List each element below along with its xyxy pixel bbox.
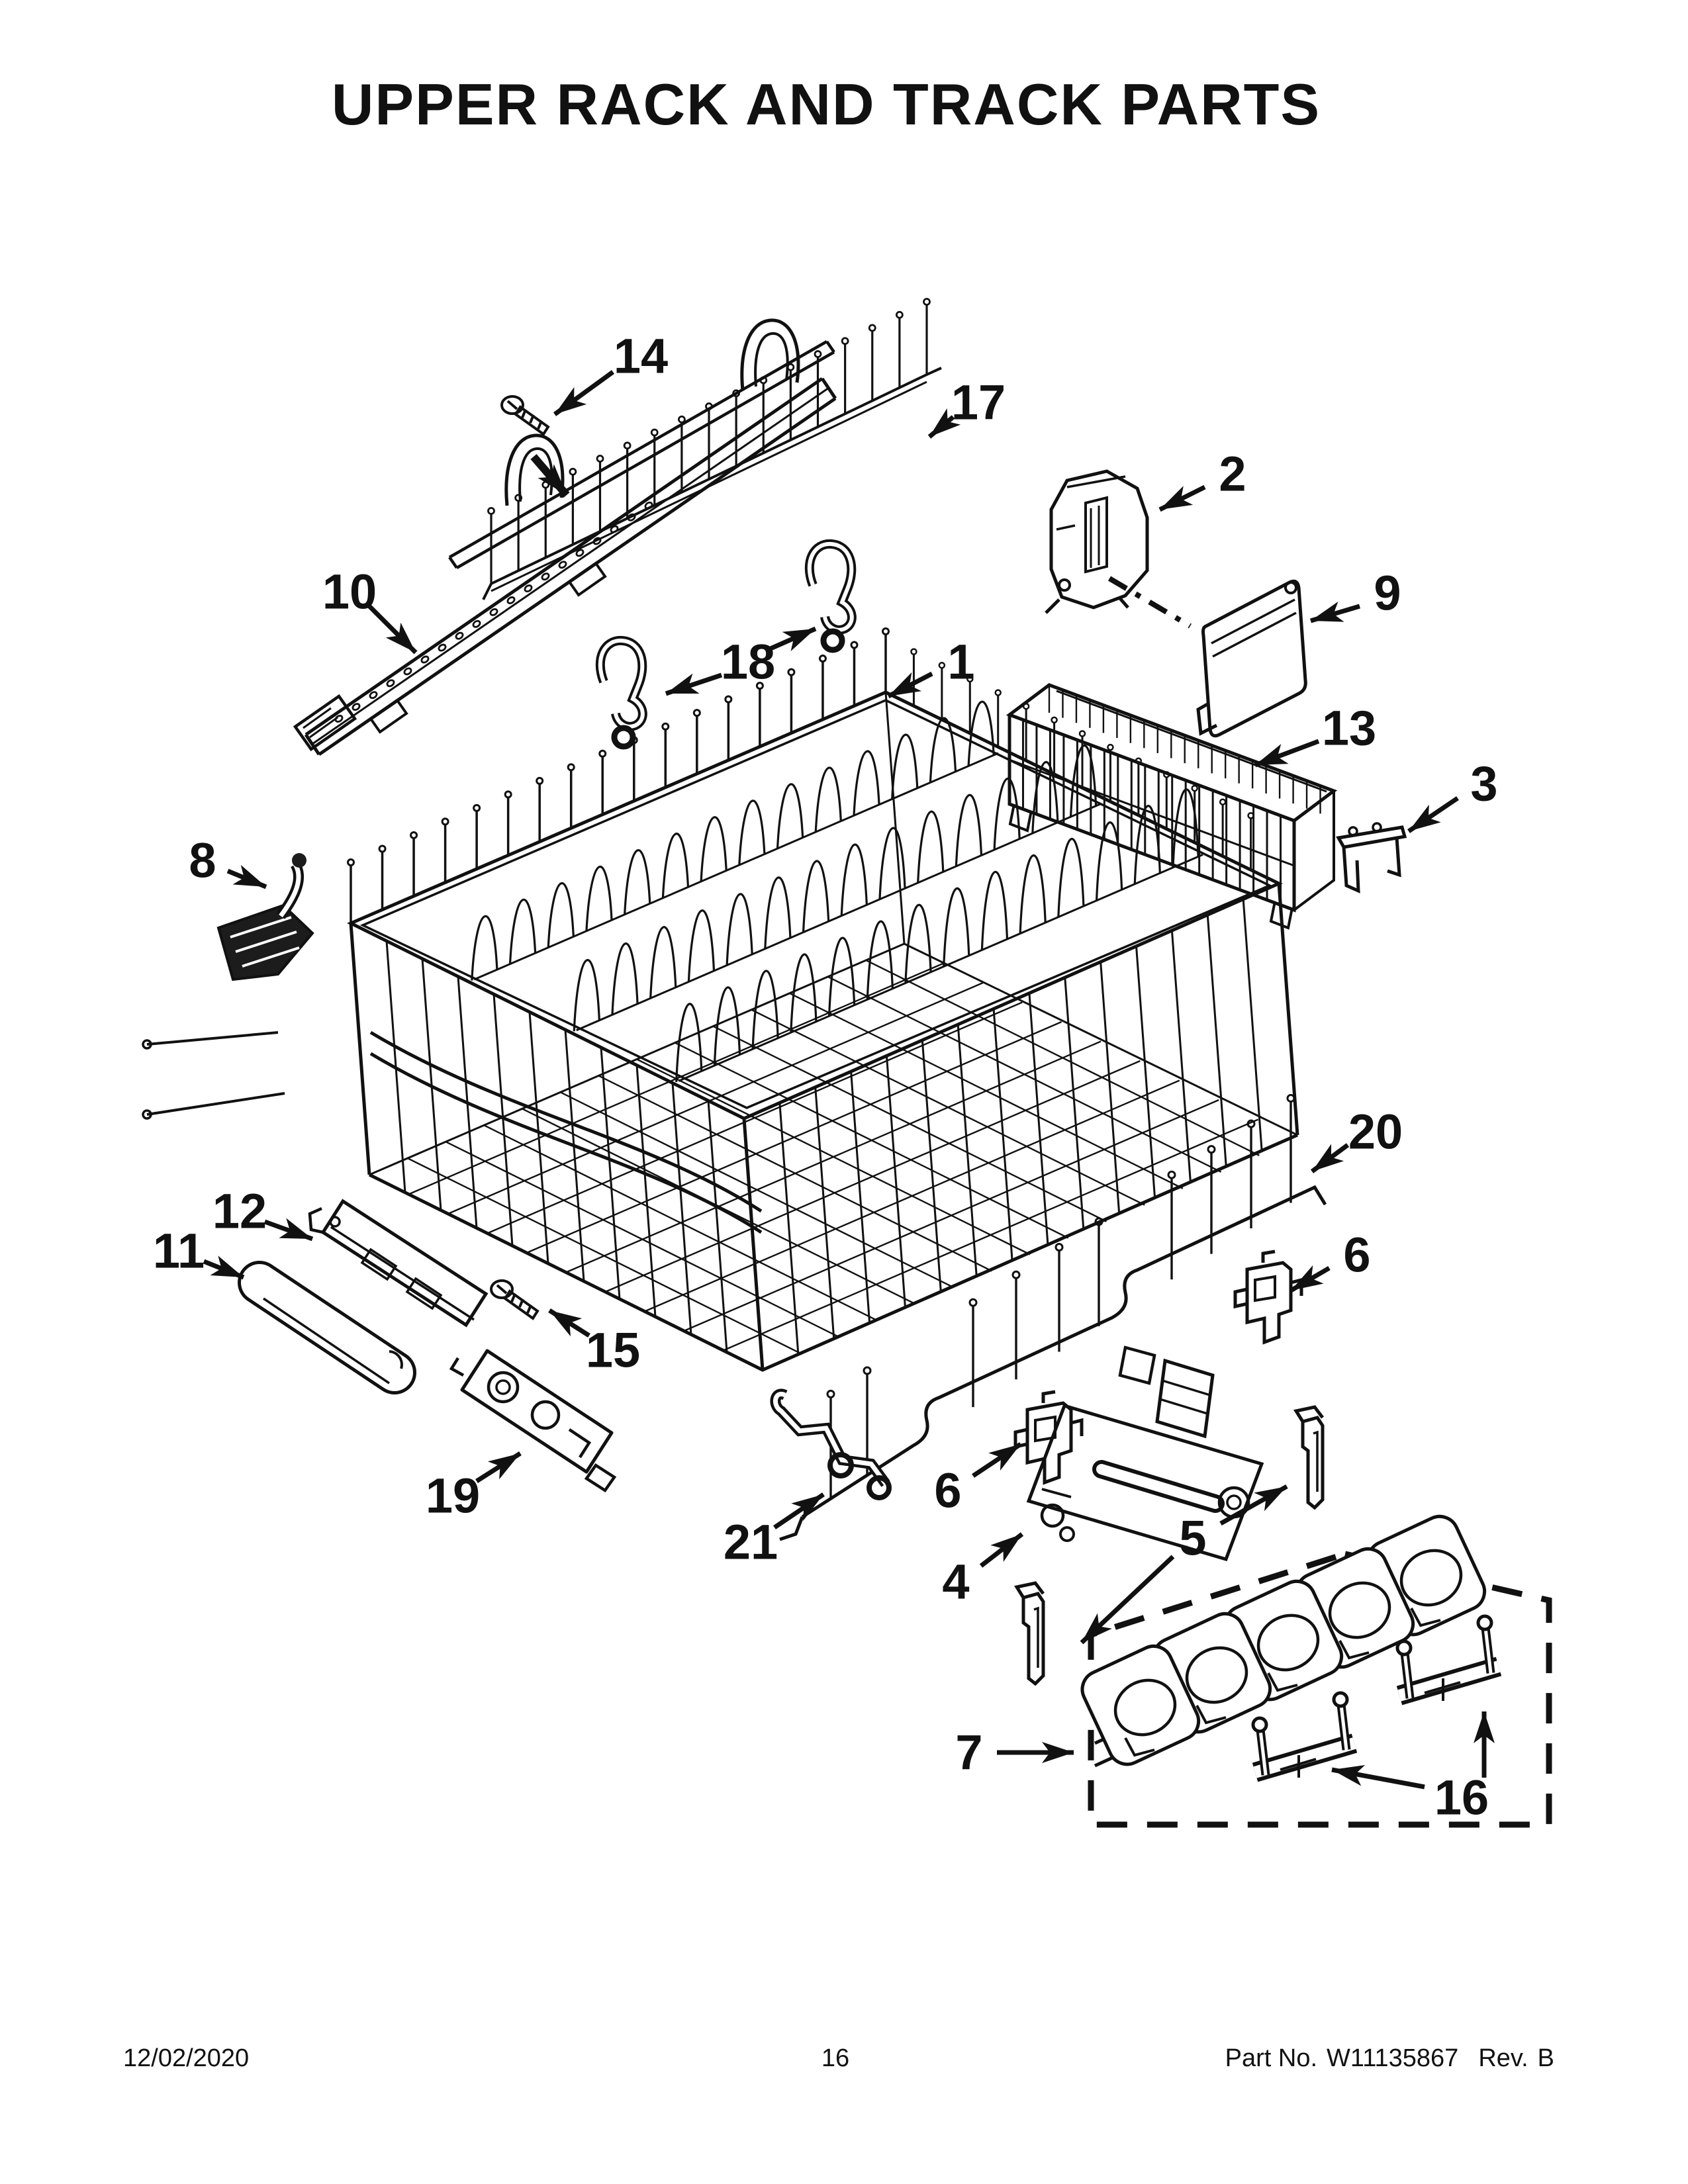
callout-arrow-9 <box>1311 606 1360 621</box>
part-7-cup-shelf <box>1076 1510 1491 1770</box>
callout-label-14: 14 <box>614 329 668 384</box>
part-20-tine-wire <box>780 1095 1325 1539</box>
callout-label-12: 12 <box>212 1184 267 1239</box>
callout-arrow-3 <box>1409 798 1458 831</box>
callout-label-4: 4 <box>942 1555 969 1610</box>
manual-page: UPPER RACK AND TRACK PARTS <box>0 0 1688 2184</box>
callout-arrow-4 <box>981 1534 1022 1566</box>
footer-page-number: 16 <box>821 2044 849 2072</box>
callout-label-18: 18 <box>721 635 775 690</box>
callout-arrow-14 <box>555 372 613 414</box>
callout-arrow-19 <box>477 1453 520 1481</box>
footer-date: 12/02/2020 <box>123 2044 249 2072</box>
footer-revision: B <box>1538 2044 1554 2072</box>
callout-arrow-16 <box>1332 1770 1425 1787</box>
part-3-clip <box>1338 823 1405 891</box>
part-18-hook-clip <box>810 544 852 650</box>
callout-label-10: 10 <box>322 565 377 619</box>
footer-part-label: Part No. <box>1225 2044 1317 2072</box>
part-5-stop-clip <box>1296 1407 1323 1508</box>
callout-label-6: 6 <box>934 1463 961 1518</box>
callout-label-17: 17 <box>951 375 1006 430</box>
callout-arrow-1 <box>888 674 932 696</box>
callout-label-5: 5 <box>1179 1511 1206 1566</box>
part-2-adjuster-bracket <box>1046 471 1147 613</box>
callout-arrow-18 <box>771 629 816 649</box>
part-14-screw <box>502 396 548 434</box>
callout-arrow-13 <box>1255 741 1319 765</box>
part-21-wire-hook <box>775 1394 889 1498</box>
callout-label-7: 7 <box>955 1725 982 1780</box>
callout-label-6: 6 <box>1343 1228 1370 1283</box>
callout-label-8: 8 <box>189 833 216 888</box>
part-18-hook-clip <box>600 641 643 747</box>
callout-label-15: 15 <box>586 1323 640 1378</box>
callout-arrow-8 <box>228 871 266 887</box>
page-title: UPPER RACK AND TRACK PARTS <box>332 71 1321 137</box>
callout-arrow-12 <box>265 1222 312 1239</box>
callout-arrow-17 <box>929 417 953 437</box>
part-16-shelf-clip <box>1253 1693 1354 1778</box>
part-6-clip <box>1235 1251 1301 1342</box>
part-10-track-rail <box>295 320 835 754</box>
callout-arrow-5 <box>1082 1557 1173 1643</box>
callout-label-9: 9 <box>1374 566 1401 621</box>
part-5-stop-clip <box>1017 1583 1043 1684</box>
callout-arrow-5 <box>1221 1486 1287 1524</box>
part-13-small-items-basket <box>1009 685 1334 928</box>
callout-label-2: 2 <box>1219 447 1246 502</box>
callout-arrow-20 <box>1312 1145 1348 1171</box>
callout-label-20: 20 <box>1348 1105 1403 1160</box>
callout-arrow-18 <box>666 675 722 694</box>
callout-label-13: 13 <box>1322 701 1376 756</box>
callout-arrow-11 <box>204 1261 244 1277</box>
callout-arrow-15 <box>549 1310 589 1336</box>
callout-label-3: 3 <box>1470 756 1497 811</box>
callout-label-19: 19 <box>426 1469 480 1524</box>
part-6-clip <box>1015 1392 1082 1482</box>
footer-revision-label: Rev. <box>1478 2044 1528 2072</box>
callout-label-1: 1 <box>947 635 974 690</box>
part-11-handle-cap <box>259 1283 402 1383</box>
part-9-end-cap-cover <box>1198 581 1305 736</box>
part-17-tine-wire <box>483 299 941 600</box>
callout-label-21: 21 <box>724 1515 778 1570</box>
callout-arrow-2 <box>1160 487 1205 510</box>
callout-label-16: 16 <box>1434 1770 1489 1825</box>
callout-arrow-6 <box>1291 1268 1329 1291</box>
part-1-upper-rack <box>143 629 1297 1371</box>
part-15-screw <box>491 1281 538 1318</box>
callout-arrow-6 <box>973 1444 1021 1476</box>
footer-part-info: Part No.W11135867Rev.B <box>1225 2044 1554 2072</box>
parts-diagram: UPPER RACK AND TRACK PARTS <box>0 0 1688 2184</box>
footer-part-number: W11135867 <box>1327 2044 1458 2072</box>
callout-label-11: 11 <box>153 1224 205 1279</box>
